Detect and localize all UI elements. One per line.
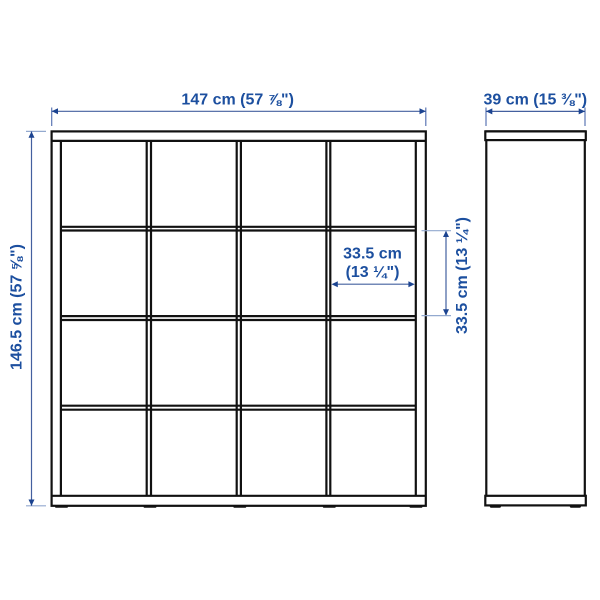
svg-text:147 cm (57 ⅞"): 147 cm (57 ⅞") — [181, 92, 294, 109]
svg-text:39 cm (15 ⅜"): 39 cm (15 ⅜") — [483, 92, 587, 109]
svg-text:33.5 cm (13 ¼"): 33.5 cm (13 ¼") — [454, 217, 471, 334]
svg-text:(13 ¼"): (13 ¼") — [346, 264, 400, 281]
svg-text:146.5 cm (57 ⅝"): 146.5 cm (57 ⅝") — [9, 244, 26, 370]
svg-text:33.5 cm: 33.5 cm — [343, 246, 402, 263]
